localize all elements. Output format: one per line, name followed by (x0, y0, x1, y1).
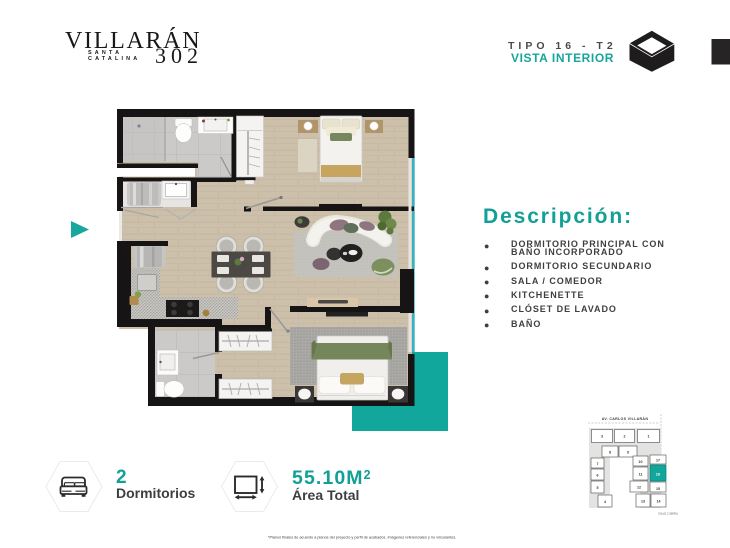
svg-text:16: 16 (656, 472, 661, 477)
svg-text:5: 5 (597, 486, 599, 490)
svg-text:7: 7 (597, 462, 599, 466)
svg-text:1: 1 (648, 435, 650, 439)
svg-text:17: 17 (656, 459, 660, 463)
svg-text:10: 10 (639, 460, 643, 464)
svg-text:9: 9 (627, 451, 629, 455)
svg-text:AV. CARLOS VILLARÁN: AV. CARLOS VILLARÁN (602, 416, 649, 421)
svg-text:CALLE 2 | BERLI: CALLE 2 | BERLI (658, 512, 678, 516)
svg-text:15: 15 (656, 487, 660, 491)
svg-text:14: 14 (657, 500, 661, 504)
svg-text:4: 4 (604, 500, 606, 504)
svg-text:13: 13 (641, 500, 645, 504)
svg-text:3: 3 (601, 435, 603, 439)
svg-text:6: 6 (597, 474, 599, 478)
svg-text:8: 8 (609, 451, 611, 455)
svg-text:11: 11 (639, 473, 643, 477)
svg-text:2: 2 (624, 435, 626, 439)
svg-text:12: 12 (637, 486, 641, 490)
